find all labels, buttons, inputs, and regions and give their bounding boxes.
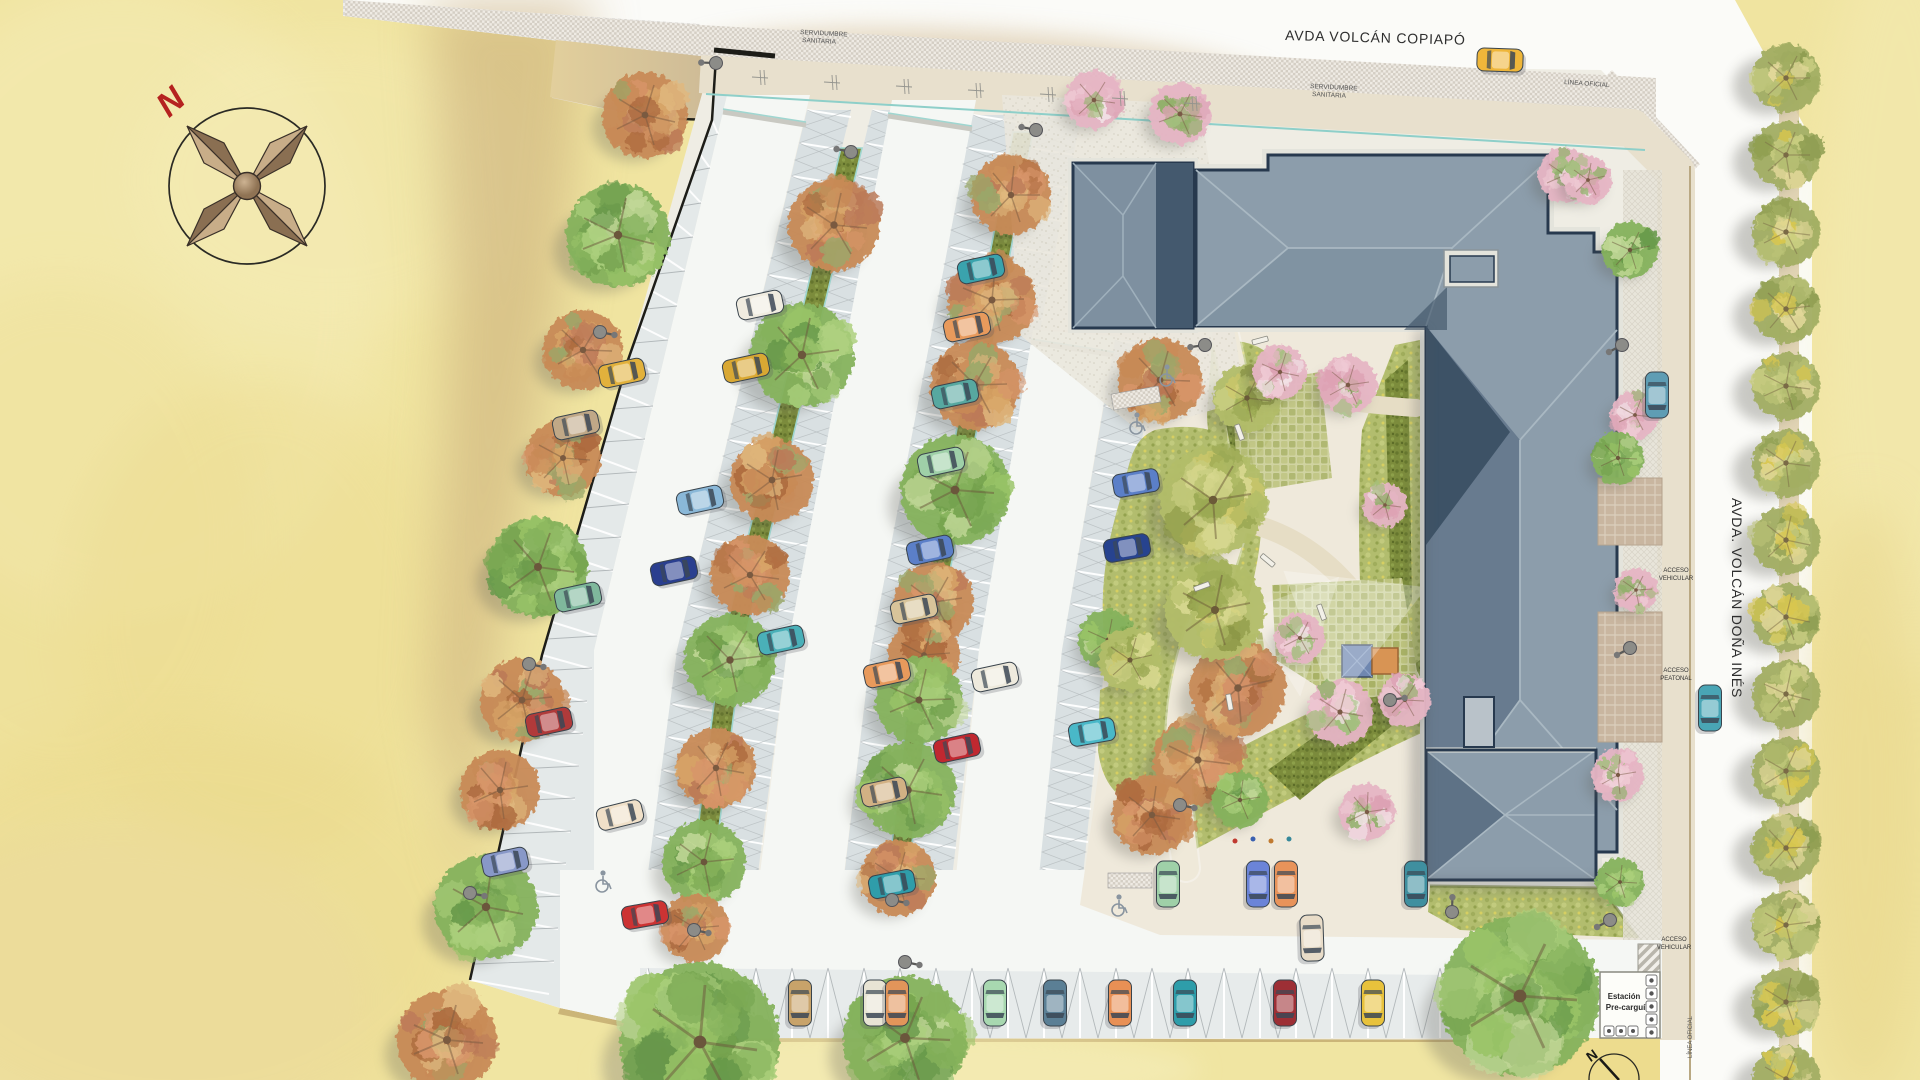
svg-text:VEHICULAR: VEHICULAR xyxy=(1657,945,1692,951)
svg-text:Estación: Estación xyxy=(1608,992,1641,1001)
svg-text:VEHICULAR: VEHICULAR xyxy=(1659,576,1694,582)
svg-text:ACCESO: ACCESO xyxy=(1661,937,1687,943)
svg-text:ACCESO: ACCESO xyxy=(1663,568,1689,574)
svg-text:Pre-carguío: Pre-carguío xyxy=(1606,1003,1651,1012)
svg-text:AVDA. VOLCÁN DOÑA INÉS: AVDA. VOLCÁN DOÑA INÉS xyxy=(1729,498,1745,698)
svg-text:ACCESO: ACCESO xyxy=(1663,668,1689,674)
svg-text:LÍNEA OFICIAL: LÍNEA OFICIAL xyxy=(1687,1015,1694,1058)
svg-text:PEATONAL: PEATONAL xyxy=(1660,676,1692,682)
